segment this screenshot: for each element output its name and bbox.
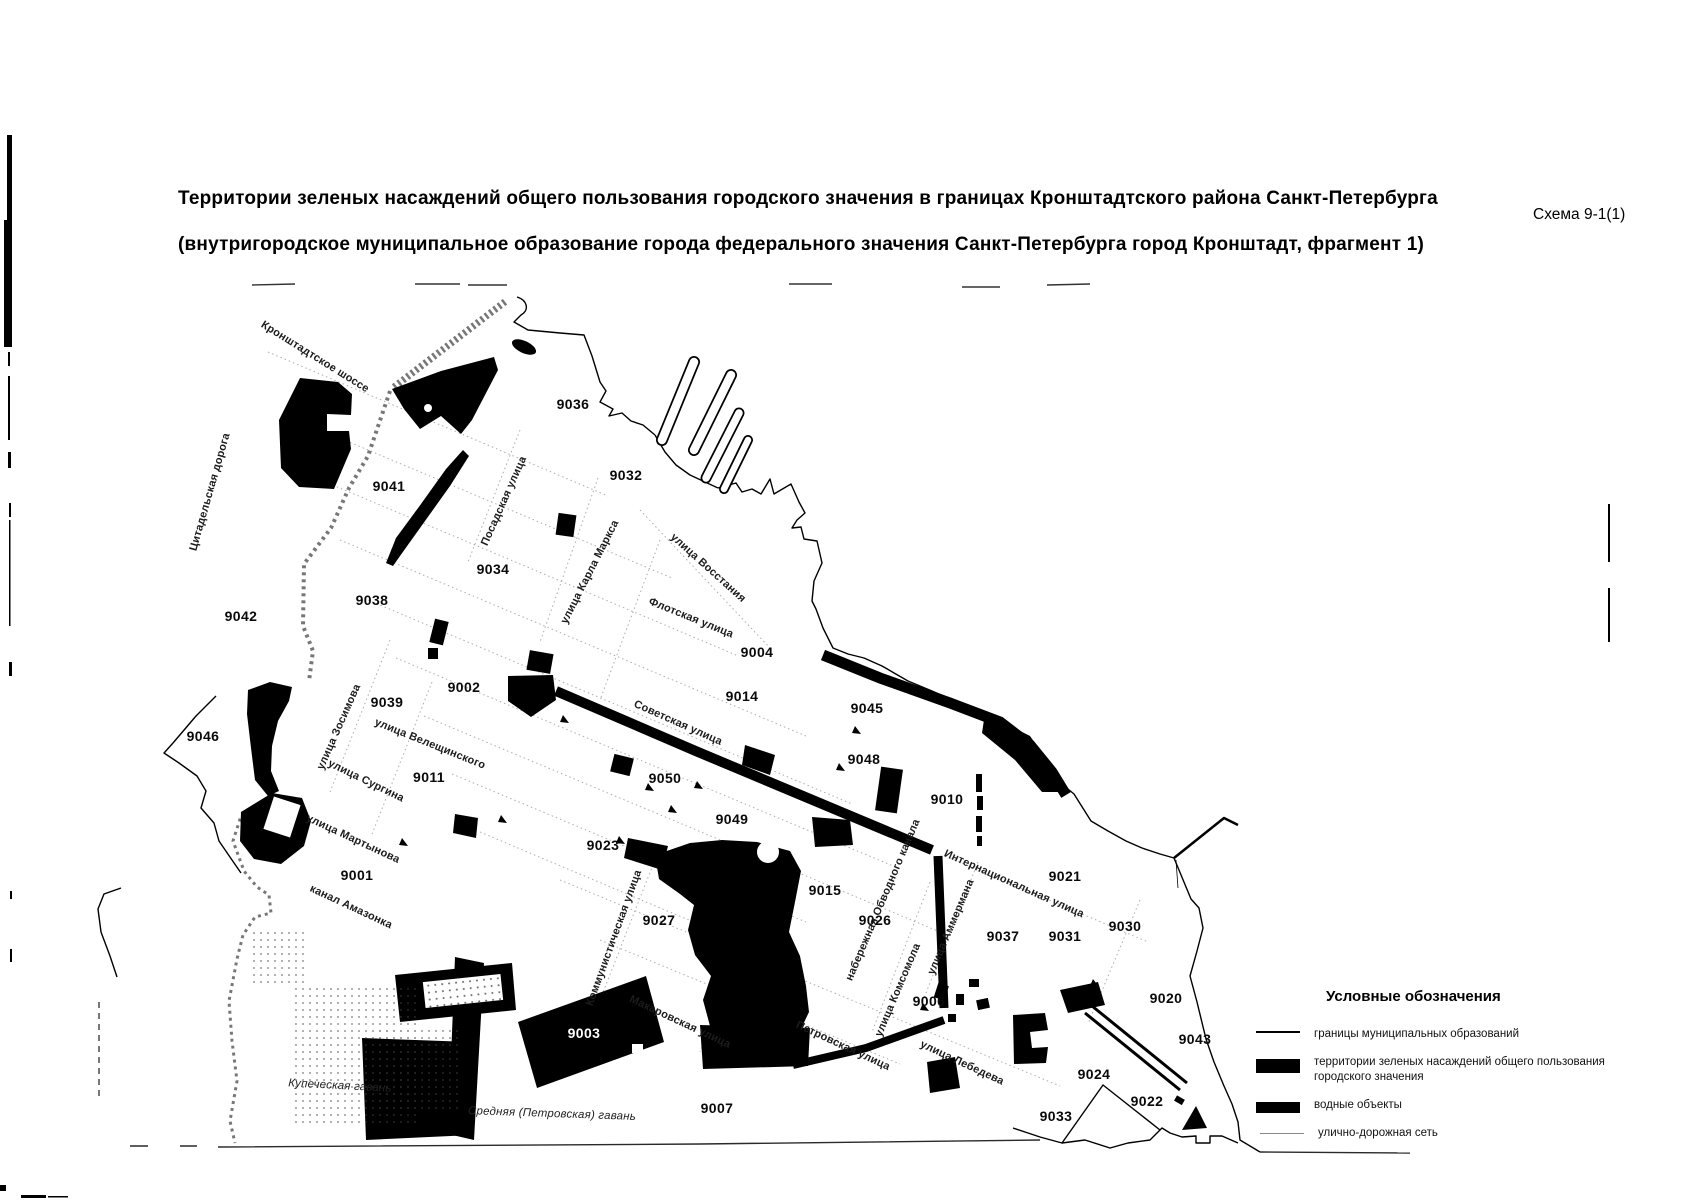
legend-item-label: территории зеленых насаждений общего пол… (1314, 1055, 1614, 1085)
boulevard-double-line (1085, 1006, 1187, 1090)
title-line-2: (внутригородское муниципальное образован… (178, 234, 1438, 256)
shore-green-blob (982, 713, 1064, 792)
legend-item-label: границы муниципальных образований (1314, 1027, 1614, 1042)
legend-item-label: водные объекты (1314, 1098, 1614, 1113)
legend-items: границы муниципальных образованийтеррито… (1256, 1027, 1696, 1141)
harbor-piers (662, 362, 748, 489)
legend-item-label: улично-дорожная сеть (1318, 1126, 1618, 1141)
stipple-texture (250, 928, 460, 1125)
legend-item-0: границы муниципальных образований (1256, 1027, 1696, 1042)
scheme-reference: Схема 9-1(1) (1533, 206, 1625, 224)
legend: Условные обозначения границы муниципальн… (1256, 988, 1696, 1154)
legend-item-1: территории зеленых насаждений общего пол… (1256, 1055, 1696, 1085)
legend-item-3: улично-дорожная сеть (1256, 1126, 1696, 1141)
legend-item-2: водные объекты (1256, 1098, 1696, 1113)
area-green-symbol (1256, 1059, 1300, 1073)
road-line-symbol (1260, 1133, 1304, 1134)
title-line-1: Территории зеленых насаждений общего пол… (178, 188, 1438, 210)
page: Территории зеленых насаждений общего пол… (0, 0, 1697, 1200)
area-water-symbol (1256, 1102, 1300, 1113)
map-title: Территории зеленых насаждений общего пол… (178, 188, 1438, 256)
boundary-line-symbol (1256, 1031, 1300, 1033)
legend-title: Условные обозначения (1326, 988, 1696, 1005)
